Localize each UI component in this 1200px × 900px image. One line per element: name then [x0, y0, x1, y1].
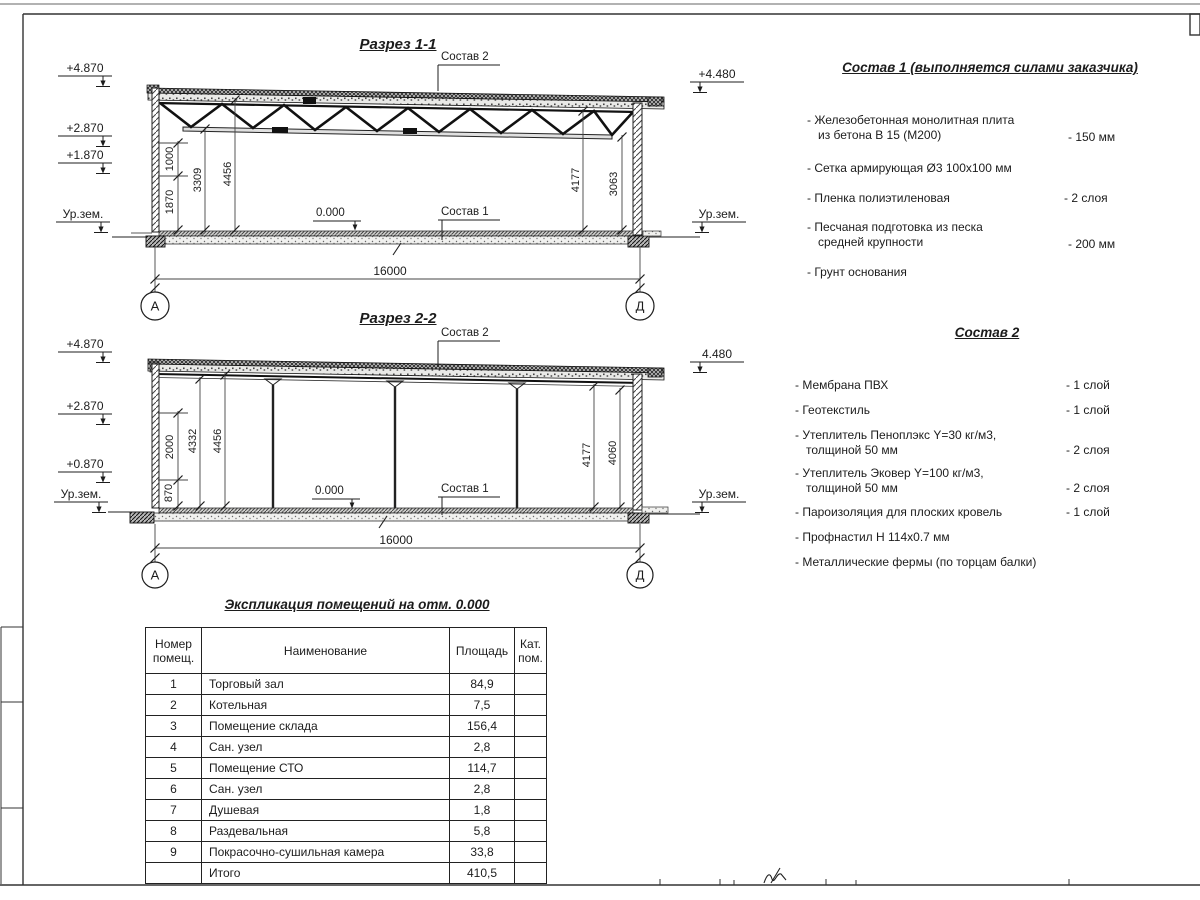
room-cat — [515, 779, 547, 800]
room-area: 114,7 — [450, 758, 515, 779]
room-schedule-table: Номер помещ. Наименование Площадь Кат. п… — [145, 627, 547, 884]
s1-zero-level: 0.000 — [316, 207, 345, 219]
col-header-cat: Кат. пом. — [515, 628, 547, 674]
sostav1-item: - Пленка полиэтиленовая — [807, 191, 1068, 206]
drawing-sheet: Разрез 1-1 Состав 2 Состав 1 0.000 16000… — [0, 0, 1200, 900]
s1-dim-1000: 1000 — [164, 147, 176, 171]
table-row: 1Торговый зал84,9 — [146, 674, 547, 695]
s2-dim-4332: 4332 — [187, 429, 199, 453]
room-num: 7 — [146, 800, 202, 821]
table-row: 5Помещение СТО114,7 — [146, 758, 547, 779]
s1-ground-right: Ур.зем. — [692, 207, 746, 221]
room-area: 156,4 — [450, 716, 515, 737]
sostav1-item-value: - 150 мм — [1068, 130, 1115, 144]
sostav2-item: - Мембрана ПВХ — [795, 378, 1056, 393]
sostav2-item-value: - 1 слой — [1066, 403, 1110, 417]
room-schedule-title: Экспликация помещений на отм. 0.000 — [224, 597, 489, 612]
room-cat — [515, 695, 547, 716]
s2-elev-4480: 4.480 — [690, 347, 744, 361]
room-name: Помещение СТО — [202, 758, 450, 779]
room-area: 1,8 — [450, 800, 515, 821]
s1-span-dim: 16000 — [373, 264, 406, 278]
s2-sostav2-label: Состав 2 — [441, 327, 489, 339]
room-area: 5,8 — [450, 821, 515, 842]
room-cat — [515, 863, 547, 884]
room-area: 33,8 — [450, 842, 515, 863]
s2-span-dim: 16000 — [379, 533, 412, 547]
s1-ground-left: Ур.зем. — [56, 207, 110, 221]
sostav1-item: - Грунт основания — [807, 265, 1068, 280]
s2-ground-left: Ур.зем. — [54, 487, 108, 501]
col-header-name: Наименование — [202, 628, 450, 674]
room-name: Помещение склада — [202, 716, 450, 737]
s2-ground-right: Ур.зем. — [692, 487, 746, 501]
s2-dim-4060: 4060 — [607, 441, 619, 465]
table-row: 6Сан. узел2,8 — [146, 779, 547, 800]
s1-elev-4870: +4.870 — [58, 61, 112, 75]
sostav1-item-value: - 2 слоя — [1064, 191, 1108, 205]
room-cat — [515, 758, 547, 779]
s2-dim-870: 870 — [163, 484, 175, 502]
s2-dim-4456: 4456 — [212, 429, 224, 453]
s1-axis-d: Д — [636, 299, 645, 314]
room-area: 7,5 — [450, 695, 515, 716]
table-row: 8Раздевальная5,8 — [146, 821, 547, 842]
sostav1-item-value: - 200 мм — [1068, 237, 1115, 251]
room-num: 2 — [146, 695, 202, 716]
sostav2-item-value: - 2 слоя — [1066, 443, 1110, 457]
s2-axis-d: Д — [636, 568, 645, 583]
s1-sostav2-label: Состав 2 — [441, 51, 489, 63]
room-num: 4 — [146, 737, 202, 758]
table-row: 3Помещение склада156,4 — [146, 716, 547, 737]
sostav2-item-value: - 1 слой — [1066, 505, 1110, 519]
sostav2-item: - Утеплитель Пеноплэкс Y=30 кг/м3, толщи… — [795, 428, 1056, 458]
room-cat — [515, 842, 547, 863]
room-num: 9 — [146, 842, 202, 863]
sostav2-item: - Профнастил Н 114х0.7 мм — [795, 530, 1056, 545]
room-area: 410,5 — [450, 863, 515, 884]
room-num: 1 — [146, 674, 202, 695]
table-row: 4Сан. узел2,8 — [146, 737, 547, 758]
room-name: Котельная — [202, 695, 450, 716]
section-1-1-title: Разрез 1-1 — [359, 36, 436, 53]
room-name: Сан. узел — [202, 779, 450, 800]
s1-dim-4456: 4456 — [222, 162, 234, 186]
room-area: 2,8 — [450, 779, 515, 800]
s2-axis-a: А — [151, 568, 160, 583]
s2-sostav1-label: Состав 1 — [441, 483, 489, 495]
s1-dim-3063: 3063 — [608, 172, 620, 196]
room-cat — [515, 737, 547, 758]
room-num: 6 — [146, 779, 202, 800]
sostav1-item: - Сетка армирующая Ø3 100х100 мм — [807, 161, 1068, 176]
s1-sostav1-label: Состав 1 — [441, 206, 489, 218]
room-cat — [515, 716, 547, 737]
section-2-2-drawing — [54, 341, 746, 588]
room-num: 5 — [146, 758, 202, 779]
s2-dim-2000: 2000 — [164, 435, 176, 459]
sostav2-item-value: - 2 слоя — [1066, 481, 1110, 495]
s1-dim-3309: 3309 — [192, 168, 204, 192]
sostav2-heading: Состав 2 — [955, 325, 1019, 340]
room-name: Душевая — [202, 800, 450, 821]
col-header-num: Номер помещ. — [146, 628, 202, 674]
room-area: 2,8 — [450, 737, 515, 758]
table-row: 7Душевая1,8 — [146, 800, 547, 821]
sostav1-item: - Песчаная подготовка из песка средней к… — [807, 220, 1068, 250]
s1-axis-a: А — [151, 299, 160, 314]
s2-elev-0870: +0.870 — [58, 457, 112, 471]
s2-elev-4870: +4.870 — [58, 337, 112, 351]
room-name: Покрасочно-сушильная камера — [202, 842, 450, 863]
room-cat — [515, 800, 547, 821]
sostav2-item-value: - 1 слой — [1066, 378, 1110, 392]
s2-elev-2870: +2.870 — [58, 399, 112, 413]
s1-elev-1870: +1.870 — [58, 148, 112, 162]
room-num — [146, 863, 202, 884]
sostav2-item: - Пароизоляция для плоских кровель — [795, 505, 1056, 520]
room-cat — [515, 674, 547, 695]
room-name: Раздевальная — [202, 821, 450, 842]
section-1-1-drawing — [56, 65, 746, 320]
table-row: Итого410,5 — [146, 863, 547, 884]
s1-dim-4177: 4177 — [570, 168, 582, 192]
room-num: 8 — [146, 821, 202, 842]
sostav2-item: - Утеплитель Эковер Y=100 кг/м3, толщино… — [795, 466, 1056, 496]
sostav2-item: - Геотекстиль — [795, 403, 1056, 418]
table-row: 2Котельная7,5 — [146, 695, 547, 716]
sostav2-item: - Металлические фермы (по торцам балки) — [795, 555, 1056, 570]
s1-elev-2870: +2.870 — [58, 121, 112, 135]
room-cat — [515, 821, 547, 842]
room-area: 84,9 — [450, 674, 515, 695]
section-2-2-title: Разрез 2-2 — [359, 310, 436, 327]
table-row: 9Покрасочно-сушильная камера33,8 — [146, 842, 547, 863]
col-header-area: Площадь — [450, 628, 515, 674]
s1-elev-4480: +4.480 — [690, 67, 744, 81]
s2-dim-4177: 4177 — [581, 443, 593, 467]
s2-zero-level: 0.000 — [315, 485, 344, 497]
room-num: 3 — [146, 716, 202, 737]
room-name: Торговый зал — [202, 674, 450, 695]
s1-dim-1870: 1870 — [164, 190, 176, 214]
sostav1-heading: Состав 1 (выполняется силами заказчика) — [842, 60, 1138, 75]
room-name: Итого — [202, 863, 450, 884]
room-name: Сан. узел — [202, 737, 450, 758]
sostav1-item: - Железобетонная монолитная плита из бет… — [807, 113, 1068, 143]
